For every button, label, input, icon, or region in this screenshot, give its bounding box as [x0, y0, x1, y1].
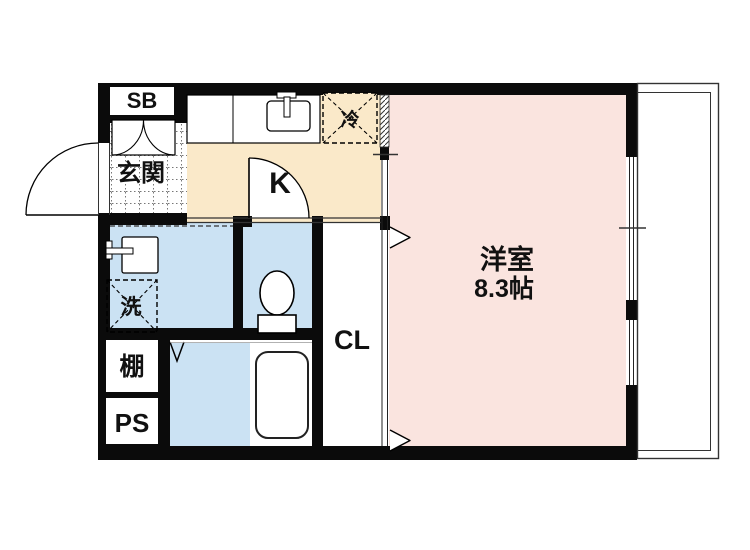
entrance-door-frame — [99, 143, 110, 215]
washer-label: 洗 — [121, 296, 142, 319]
washbasin-faucet-bar-icon — [106, 248, 133, 254]
wall-bottom — [98, 446, 637, 460]
pipe-space-label: PS — [115, 408, 150, 438]
floor-plan: SB 玄関 K 冷 洗 棚 PS CL 洋室 8.3帖 — [0, 0, 750, 550]
kitchen-label: K — [269, 167, 291, 200]
wall-washroom-toilet — [233, 216, 243, 330]
wall-kitchen-room-chunk1 — [380, 147, 389, 160]
washbasin-icon — [122, 237, 158, 273]
wall-right-upper — [626, 83, 637, 157]
bathroom-floor — [170, 343, 250, 448]
balcony-inner-line — [637, 93, 711, 451]
bathtub-icon — [256, 352, 308, 438]
wall-entrance-bottom — [98, 213, 187, 225]
refrigerator-label: 冷 — [340, 108, 359, 131]
wall-right-middle — [626, 300, 637, 320]
western-room-size-label: 8.3帖 — [474, 275, 534, 303]
window-lower — [626, 320, 637, 385]
sink-faucet-stem-icon — [284, 97, 290, 117]
floor-fills — [110, 95, 626, 448]
wall-kitchen-room-thin — [382, 160, 388, 446]
shoe-box-label: SB — [127, 88, 158, 113]
shelf-label: 棚 — [119, 353, 144, 381]
balcony-outline — [638, 84, 719, 459]
wall-right-lower — [626, 385, 637, 446]
closet-label: CL — [334, 325, 370, 355]
toilet-tank-icon — [258, 315, 296, 333]
entrance-label: 玄関 — [117, 159, 165, 187]
western-room-label: 洋室 — [480, 244, 534, 275]
entrance-door-arc — [26, 143, 98, 215]
toilet-bowl-icon — [260, 271, 294, 315]
floor-plan-svg: SB 玄関 K 冷 洗 棚 PS CL 洋室 8.3帖 — [0, 0, 750, 550]
wall-hatched-segment — [380, 95, 389, 147]
